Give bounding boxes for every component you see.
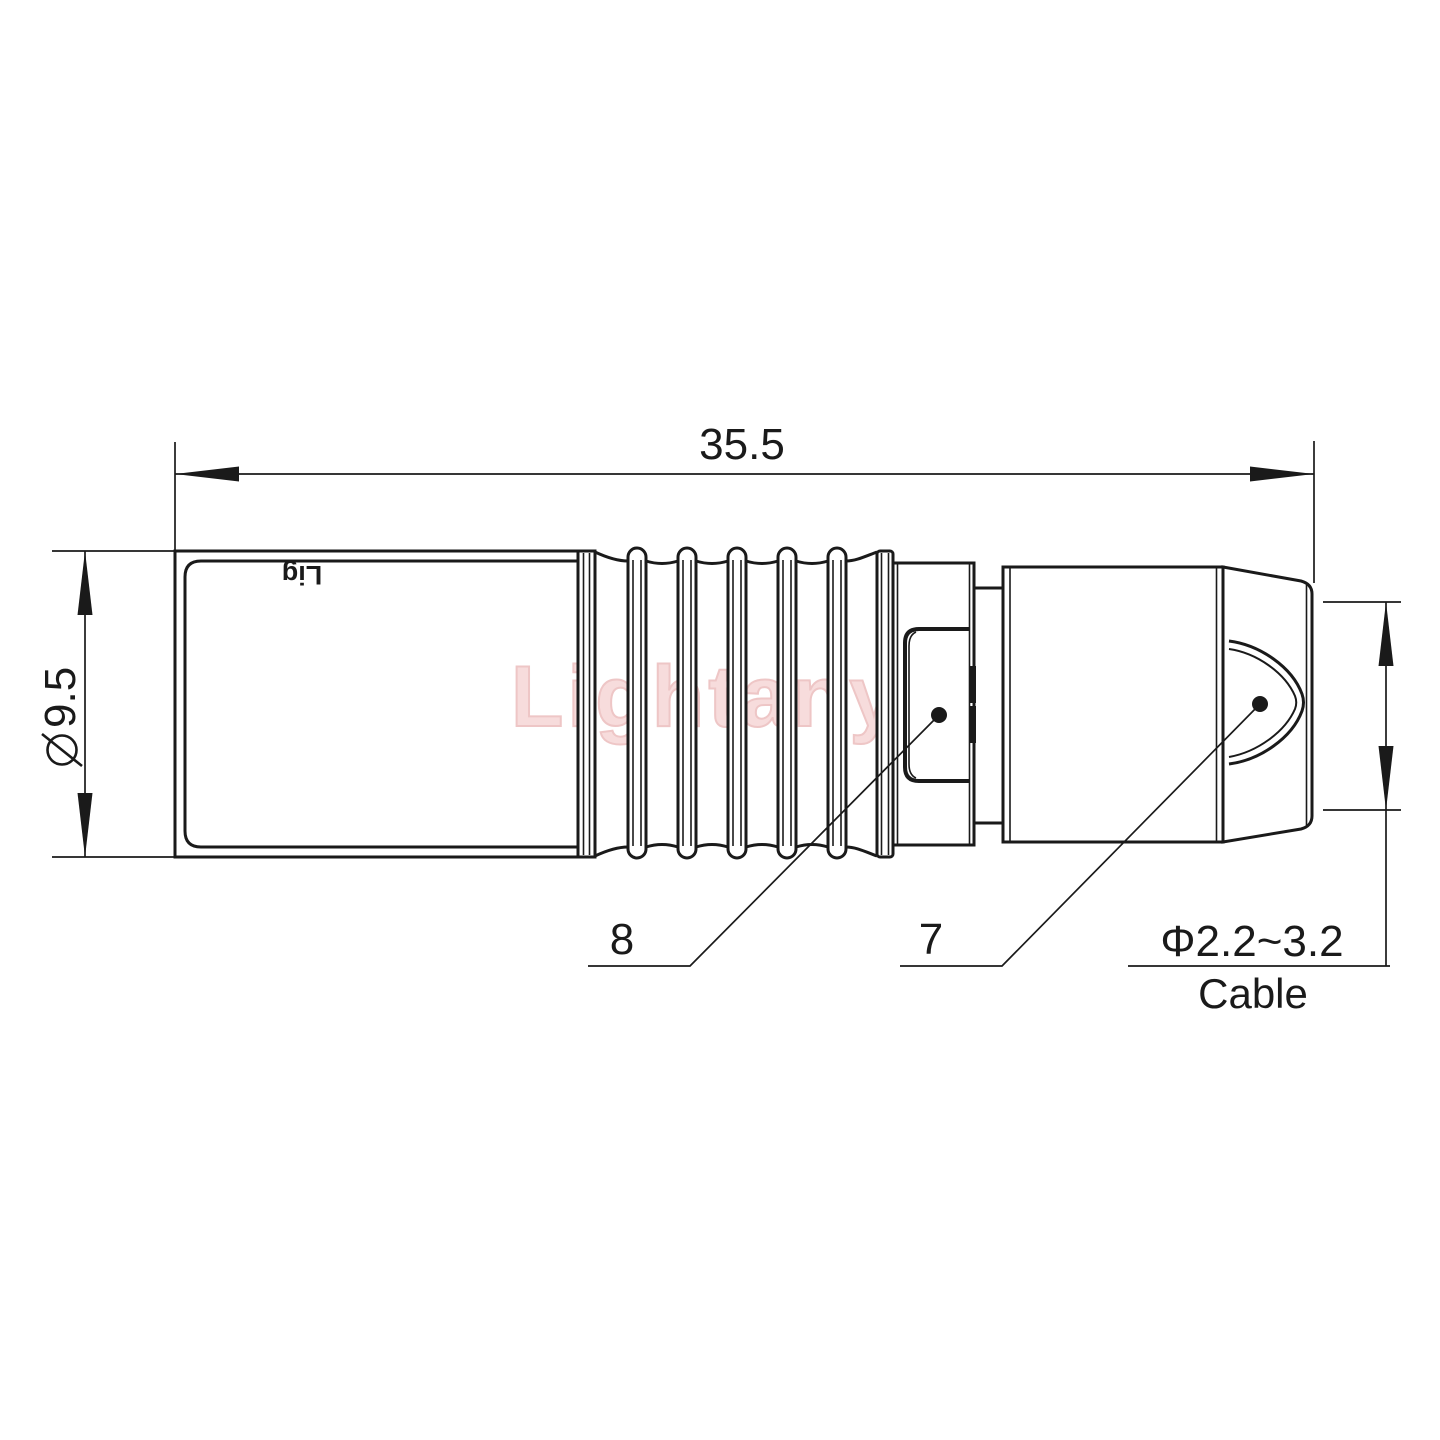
- neck-section: [974, 588, 1003, 823]
- bellows-rib: [678, 548, 696, 858]
- arrowhead-up-icon: [78, 551, 93, 615]
- bellows-rib: [628, 548, 646, 858]
- diameter-symbol-icon: [42, 734, 82, 766]
- diameter-value: 9.5: [36, 667, 85, 728]
- rear-collar-outline: [877, 551, 893, 857]
- bellows-rib: [778, 548, 796, 858]
- bellows-section: [595, 548, 877, 858]
- part-label-8: 8: [610, 915, 634, 964]
- cable-label: Cable: [1198, 970, 1308, 1017]
- bellows-rib: [728, 548, 746, 858]
- rear-collar: [877, 551, 893, 857]
- latch-sleeve: [893, 563, 976, 845]
- arrowhead-right-icon: [1250, 467, 1314, 482]
- arrowhead-down-icon: [1379, 746, 1394, 810]
- arrowhead-up-icon: [1379, 602, 1394, 666]
- rear-nut-outline: [1003, 567, 1223, 842]
- connector-drawing: Lightany Lig: [0, 0, 1440, 1440]
- front-collar-outline: [578, 551, 595, 857]
- front-collar: [578, 551, 595, 857]
- diameter-label-group: 9.5: [36, 667, 85, 766]
- overall-length-value: 35.5: [699, 420, 785, 469]
- rear-nut: [1003, 567, 1223, 842]
- part-label-7: 7: [919, 915, 943, 964]
- cable-range-value: Φ2.2~3.2: [1160, 917, 1343, 966]
- latch-slot: [970, 666, 976, 703]
- dimension-diameter: 9.5: [36, 551, 175, 857]
- technical-drawing-canvas: Lightany Lig: [0, 0, 1440, 1440]
- arrowhead-down-icon: [78, 793, 93, 857]
- body-engraving: Lig: [282, 560, 323, 590]
- body-engraving-text: Lig: [282, 560, 323, 590]
- arrowhead-left-icon: [175, 467, 239, 482]
- latch-slot: [970, 706, 976, 743]
